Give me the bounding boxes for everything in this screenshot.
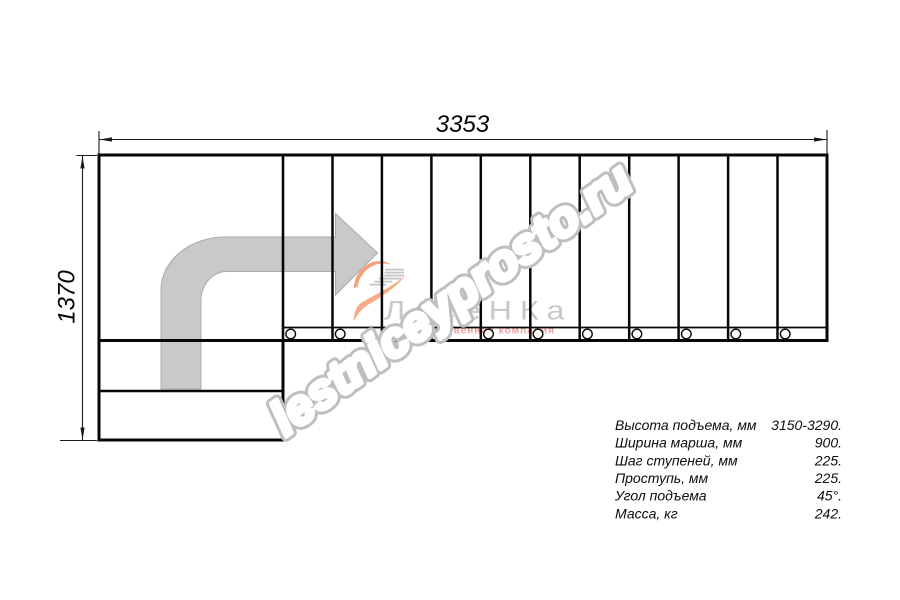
svg-text:Шаг ступеней, мм: Шаг ступеней, мм: [615, 452, 738, 468]
svg-text:45°.: 45°.: [817, 488, 842, 504]
svg-text:Проступь, мм: Проступь, мм: [615, 470, 709, 486]
svg-text:Высота подъема, мм: Высота подъема, мм: [615, 417, 757, 433]
svg-text:242.: 242.: [814, 505, 842, 521]
svg-text:Масса, кг: Масса, кг: [615, 505, 678, 521]
svg-text:1370: 1370: [54, 270, 81, 324]
svg-text:900.: 900.: [815, 435, 842, 451]
svg-text:Угол подъема: Угол подъема: [614, 488, 707, 504]
svg-text:225.: 225.: [814, 452, 842, 468]
svg-text:Ширина марша, мм: Ширина марша, мм: [615, 435, 743, 451]
svg-text:3150-3290.: 3150-3290.: [771, 417, 842, 433]
svg-text:225.: 225.: [814, 470, 842, 486]
svg-text:3353: 3353: [436, 111, 490, 138]
